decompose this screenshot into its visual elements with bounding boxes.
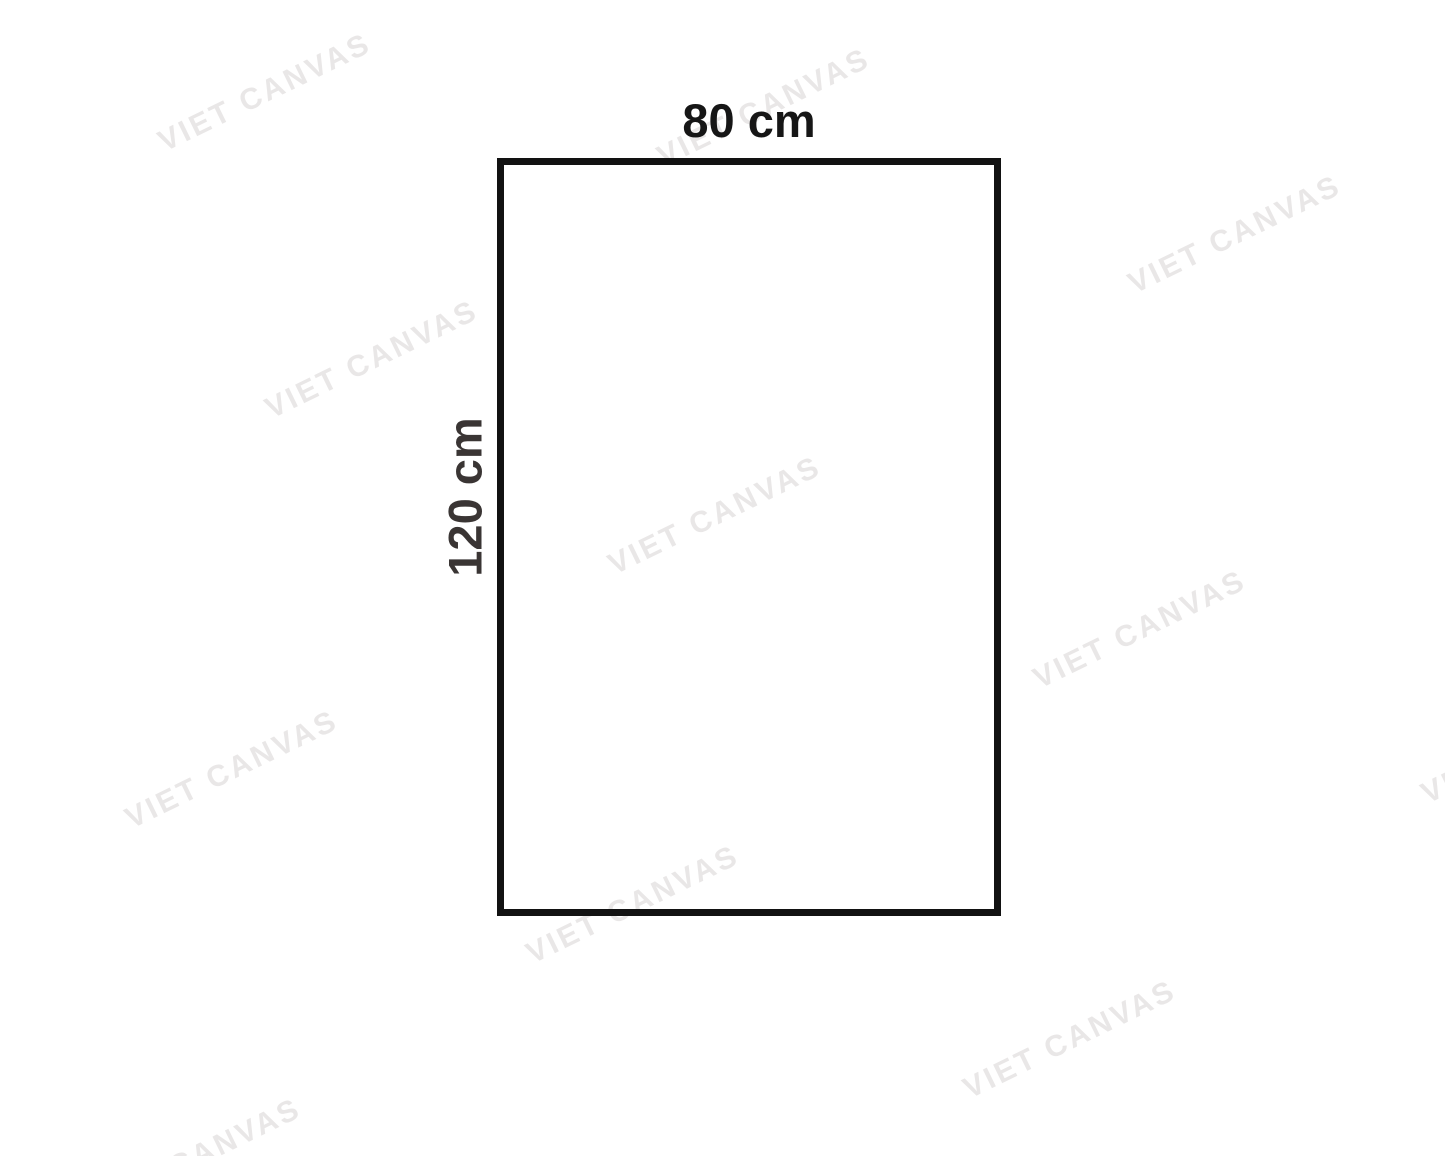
- watermark-text: VIET CANVAS: [1123, 169, 1347, 301]
- watermark-text: VIET CANVAS: [120, 704, 344, 836]
- height-dimension-label: 120 cm: [442, 417, 489, 576]
- width-dimension-label: 80 cm: [682, 97, 815, 144]
- watermark-text: VIET CANVAS: [1028, 564, 1252, 696]
- watermark-text: VIET CANVAS: [83, 1092, 307, 1156]
- watermark-text: VIET CANVAS: [958, 974, 1182, 1106]
- watermark-text: VIET CANVAS: [1416, 679, 1445, 811]
- product-dimension-diagram: VIET CANVASVIET CANVASVIET CANVASVIET CA…: [0, 0, 1445, 1156]
- canvas-outline: [497, 158, 1001, 916]
- watermark-text: VIET CANVAS: [260, 294, 484, 426]
- watermark-text: VIET CANVAS: [153, 27, 377, 159]
